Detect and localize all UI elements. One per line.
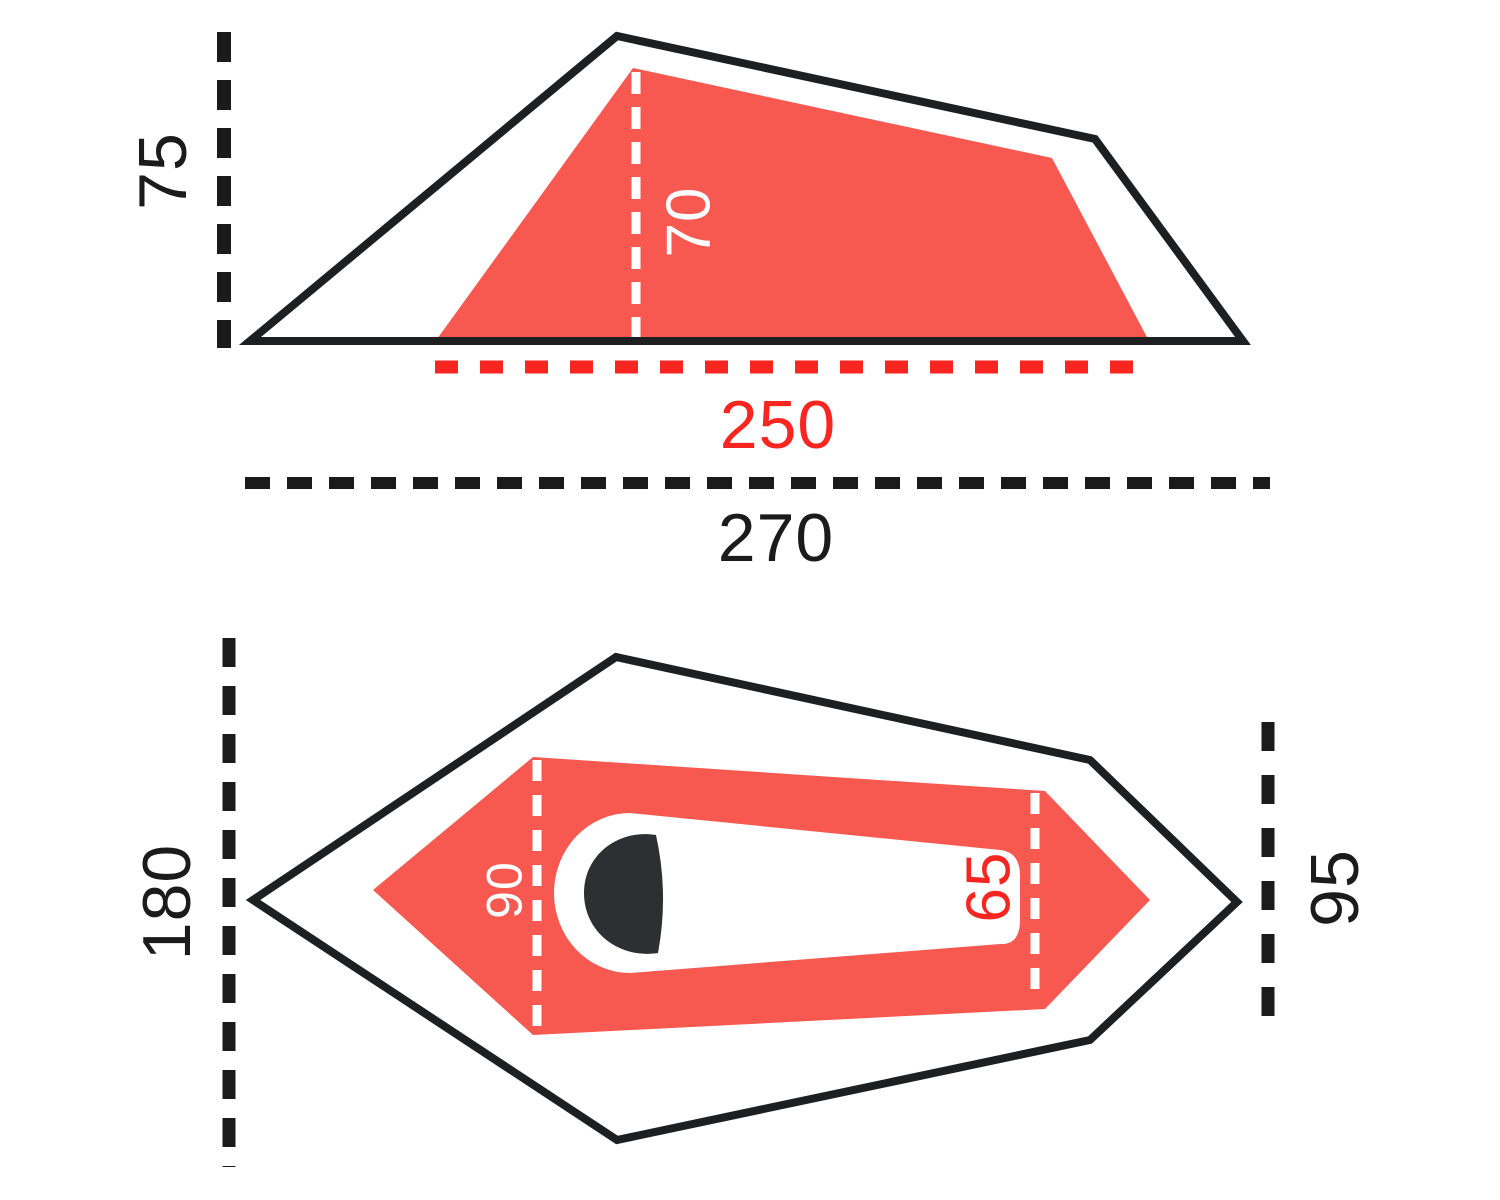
label-inner-width-foot: 65 [955, 852, 1024, 923]
label-inner-length: 250 [720, 387, 836, 463]
side-view: 75 70 250 270 [125, 32, 1270, 576]
inner-tent-profile [437, 68, 1148, 339]
label-outer-length: 270 [718, 500, 834, 576]
plan-view: 180 90 65 95 [129, 638, 1373, 1167]
label-outer-width: 180 [129, 844, 205, 960]
tent-dimension-diagram: 75 70 250 270 180 90 65 [0, 0, 1500, 1200]
label-foot-width: 95 [1297, 849, 1373, 927]
label-inner-height: 70 [655, 187, 724, 258]
label-inner-width-head: 90 [477, 861, 533, 919]
label-outer-height: 75 [125, 132, 201, 210]
